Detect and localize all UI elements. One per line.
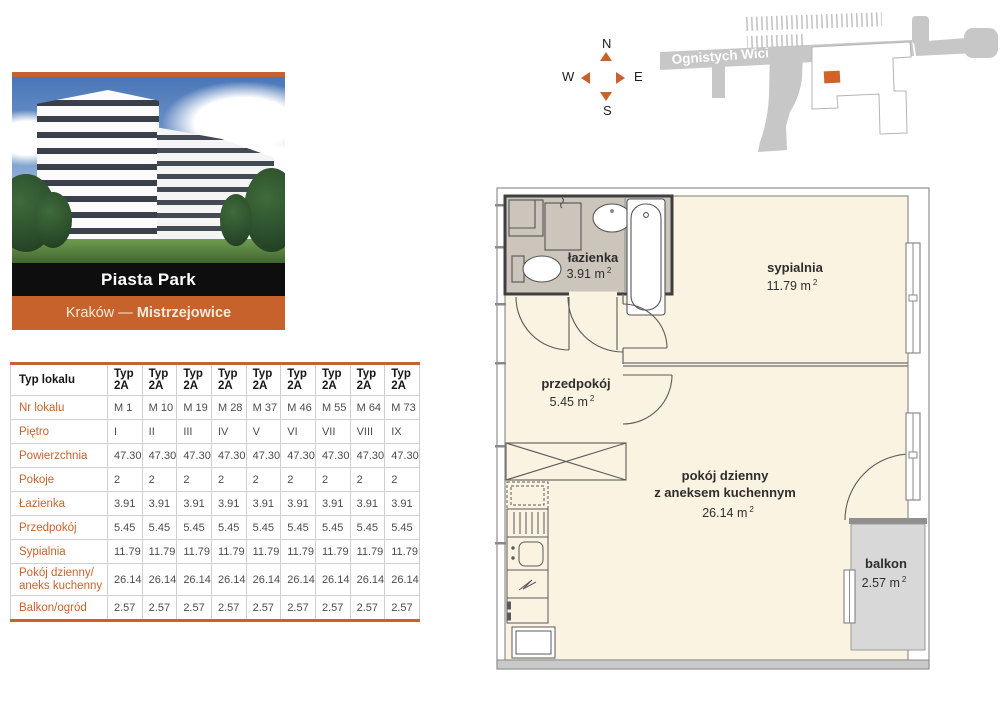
table-cell: 5.45 [177, 516, 212, 540]
table-cell: 5.45 [108, 516, 143, 540]
table-cell: 11.79 [142, 540, 177, 564]
brochure-page: Piasta Park Kraków — Mistrzejowice N W E… [0, 0, 1000, 716]
table-cell: 3.91 [142, 492, 177, 516]
table-cell: 11.79 [246, 540, 281, 564]
table-cell: 47.30 [281, 444, 316, 468]
table-cell: 47.30 [315, 444, 350, 468]
table-cell: 26.14 [246, 564, 281, 596]
table-cell: 3.91 [315, 492, 350, 516]
table-cell: 5.45 [385, 516, 420, 540]
table-cell: 5.45 [350, 516, 385, 540]
living-area: 26.14 m2 [702, 505, 754, 520]
compass-east-arrow-icon [616, 72, 625, 84]
row-label: Nr lokalu [11, 396, 108, 420]
table-cell: 47.30 [385, 444, 420, 468]
hall-label: przedpokój [541, 376, 610, 391]
compass-north-label: N [602, 36, 611, 51]
table-cell: M 46 [281, 396, 316, 420]
table-cell: 11.79 [315, 540, 350, 564]
table-cell: 11.79 [350, 540, 385, 564]
table-cell: Typ 2A [385, 364, 420, 396]
table-row: PiętroIIIIIIIVVVIVIIVIIIIX [11, 420, 420, 444]
table-cell: 2 [315, 468, 350, 492]
table-cell: 3.91 [108, 492, 143, 516]
table-row: Typ lokaluTyp 2ATyp 2ATyp 2ATyp 2ATyp 2A… [11, 364, 420, 396]
row-label: Piętro [11, 420, 108, 444]
table-cell: 2.57 [246, 596, 281, 621]
table-row: Pokój dzienny/aneks kuchenny26.1426.1426… [11, 564, 420, 596]
table-cell: 2.57 [385, 596, 420, 621]
apartment-table-body: Typ lokaluTyp 2ATyp 2ATyp 2ATyp 2ATyp 2A… [11, 364, 420, 621]
table-cell: Typ 2A [350, 364, 385, 396]
table-cell: III [177, 420, 212, 444]
table-cell: 2 [350, 468, 385, 492]
table-cell: 26.14 [281, 564, 316, 596]
table-cell: M 37 [246, 396, 281, 420]
table-cell: 3.91 [350, 492, 385, 516]
table-cell: 11.79 [385, 540, 420, 564]
site-map: Ognistych Wici [660, 0, 1000, 165]
table-cell: 2 [177, 468, 212, 492]
row-label: Pokój dzienny/aneks kuchenny [11, 564, 108, 596]
compass-south-label: S [603, 103, 612, 118]
table-cell: 47.30 [350, 444, 385, 468]
sink [593, 204, 631, 232]
table-cell: 47.30 [142, 444, 177, 468]
table-cell: 2.57 [108, 596, 143, 621]
table-cell: M 19 [177, 396, 212, 420]
compass-west-arrow-icon [581, 72, 590, 84]
table-cell: 2.57 [142, 596, 177, 621]
compass-east-label: E [634, 69, 643, 84]
row-label: Przedpokój [11, 516, 108, 540]
project-title-bar: Piasta Park [12, 263, 285, 296]
bathtub [627, 199, 665, 315]
table-row: Balkon/ogród2.572.572.572.572.572.572.57… [11, 596, 420, 621]
table-cell: 2.57 [350, 596, 385, 621]
table-cell: 26.14 [211, 564, 246, 596]
building-rendering [12, 77, 285, 263]
table-cell: II [142, 420, 177, 444]
table-cell: M 28 [211, 396, 246, 420]
floor-plan: łazienka 3.91 m2 sypialnia 11.79 m2 prze… [492, 186, 935, 678]
table-cell: 2.57 [177, 596, 212, 621]
table-cell: 11.79 [281, 540, 316, 564]
table-cell: 26.14 [108, 564, 143, 596]
table-cell: 3.91 [385, 492, 420, 516]
map-parking-hatch [745, 12, 882, 31]
project-title: Piasta Park [101, 270, 196, 290]
living-label: pokój dzienny [682, 468, 769, 483]
row-label: Pokoje [11, 468, 108, 492]
table-cell: 2.57 [281, 596, 316, 621]
table-row: Sypialnia11.7911.7911.7911.7911.7911.791… [11, 540, 420, 564]
table-cell: 3.91 [211, 492, 246, 516]
bedroom-label: sypialnia [767, 260, 823, 275]
balcony-top-wall [849, 518, 927, 524]
bathroom-label: łazienka [568, 250, 619, 265]
table-cell: M 10 [142, 396, 177, 420]
row-label: Typ lokalu [11, 364, 108, 396]
table-cell: Typ 2A [281, 364, 316, 396]
table-cell: 2 [142, 468, 177, 492]
table-cell: 5.45 [315, 516, 350, 540]
balcony-label: balkon [865, 556, 907, 571]
map-unit-marker [824, 71, 841, 84]
table-cell: 2 [211, 468, 246, 492]
compass-west-label: W [562, 69, 574, 84]
table-cell: 11.79 [108, 540, 143, 564]
table-cell: Typ 2A [108, 364, 143, 396]
table-cell: M 73 [385, 396, 420, 420]
table-row: Powierzchnia47.3047.3047.3047.3047.3047.… [11, 444, 420, 468]
hinge-mark [507, 602, 511, 609]
table-cell: 26.14 [350, 564, 385, 596]
shaft-inner [516, 631, 551, 654]
table-cell: Typ 2A [211, 364, 246, 396]
table-cell: 26.14 [385, 564, 420, 596]
toilet-bowl [523, 256, 561, 282]
table-cell: VIII [350, 420, 385, 444]
table-cell: 3.91 [246, 492, 281, 516]
wardrobe [506, 443, 626, 480]
table-cell: 2 [281, 468, 316, 492]
table-cell: IX [385, 420, 420, 444]
row-label: Łazienka [11, 492, 108, 516]
table-row: Pokoje222222222 [11, 468, 420, 492]
table-cell: Typ 2A [246, 364, 281, 396]
compass-rose: N W E S [556, 36, 656, 124]
table-cell: M 64 [350, 396, 385, 420]
table-cell: 47.30 [246, 444, 281, 468]
table-cell: 26.14 [177, 564, 212, 596]
project-card: Piasta Park Kraków — Mistrzejowice [12, 72, 285, 330]
table-cell: 3.91 [177, 492, 212, 516]
table-cell: 5.45 [211, 516, 246, 540]
bottom-wall [497, 660, 929, 669]
tree [220, 194, 253, 246]
compass-north-arrow-icon [600, 52, 612, 61]
table-cell: V [246, 420, 281, 444]
table-cell: 2.57 [211, 596, 246, 621]
table-cell: 2 [108, 468, 143, 492]
table-cell: 47.30 [177, 444, 212, 468]
table-cell: 11.79 [211, 540, 246, 564]
table-cell: VI [281, 420, 316, 444]
project-location: Kraków — Mistrzejowice [66, 305, 231, 321]
table-row: Przedpokój5.455.455.455.455.455.455.455.… [11, 516, 420, 540]
apartment-table: Typ lokaluTyp 2ATyp 2ATyp 2ATyp 2ATyp 2A… [10, 362, 420, 622]
table-cell: 2 [246, 468, 281, 492]
table-cell: M 55 [315, 396, 350, 420]
row-label: Balkon/ogród [11, 596, 108, 621]
living-label-2: z aneksem kuchennym [654, 485, 796, 500]
table-cell: VII [315, 420, 350, 444]
table-cell: Typ 2A [142, 364, 177, 396]
table-cell: 47.30 [211, 444, 246, 468]
tree [34, 192, 72, 248]
table-cell: 26.14 [142, 564, 177, 596]
table-cell: IV [211, 420, 246, 444]
map-building-outline [812, 42, 911, 134]
row-label: Sypialnia [11, 540, 108, 564]
hinge-mark [507, 613, 511, 620]
table-cell: 5.45 [281, 516, 316, 540]
table-cell: M 1 [108, 396, 143, 420]
table-cell: 2 [385, 468, 420, 492]
table-cell: 3.91 [281, 492, 316, 516]
table-cell: 5.45 [246, 516, 281, 540]
table-cell: 5.45 [142, 516, 177, 540]
table-cell: Typ 2A [315, 364, 350, 396]
table-cell: I [108, 420, 143, 444]
row-label: Powierzchnia [11, 444, 108, 468]
table-cell: 26.14 [315, 564, 350, 596]
table-row: Łazienka3.913.913.913.913.913.913.913.91… [11, 492, 420, 516]
table-row: Nr lokaluM 1M 10M 19M 28M 37M 46M 55M 64… [11, 396, 420, 420]
project-location-bar: Kraków — Mistrzejowice [12, 296, 285, 330]
compass-south-arrow-icon [600, 92, 612, 101]
table-cell: 2.57 [315, 596, 350, 621]
table-cell: 11.79 [177, 540, 212, 564]
bedroom-area: 11.79 m2 [767, 278, 818, 293]
table-cell: 47.30 [108, 444, 143, 468]
table-cell: Typ 2A [177, 364, 212, 396]
